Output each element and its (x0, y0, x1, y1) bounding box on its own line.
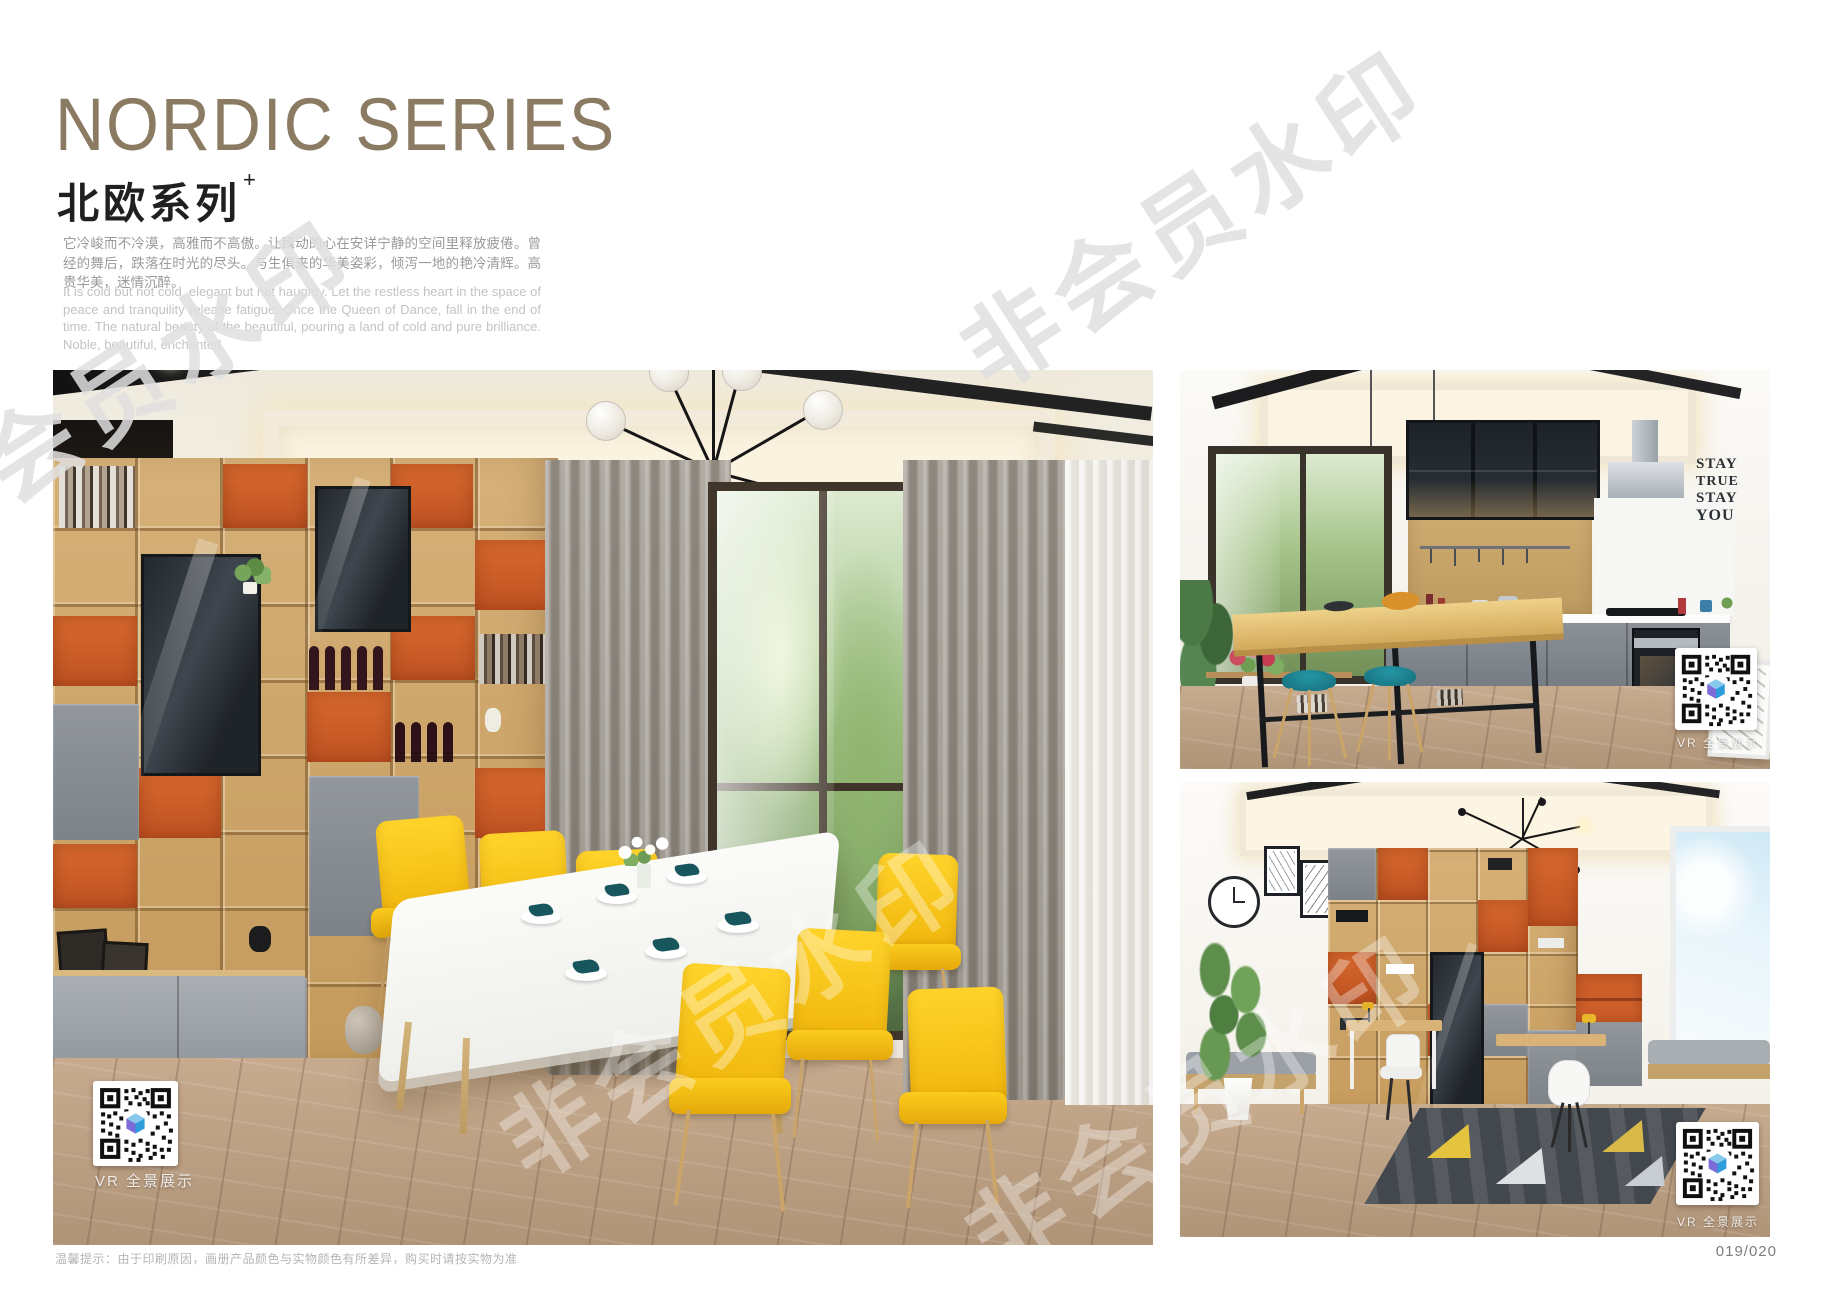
dining-chair (792, 928, 892, 1045)
orange-shelf-cell (1328, 952, 1376, 1004)
wall-clock (1208, 876, 1260, 928)
page-number: 019/020 (1716, 1243, 1777, 1260)
counter-plant (1720, 596, 1734, 610)
utensil-rail (1420, 546, 1570, 549)
qr-code (93, 1081, 178, 1166)
hanging-utensil (1430, 549, 1432, 563)
area-rug (1364, 1108, 1705, 1204)
sheer-panel (1065, 460, 1153, 1105)
wine-bottle (443, 722, 453, 762)
wall-art-line: STAY (1696, 456, 1739, 473)
orange-shelf-cell (475, 540, 555, 610)
chair-leg (1568, 1104, 1571, 1152)
dining-chair-seat (669, 1078, 791, 1114)
chandelier-bulb (1458, 808, 1466, 816)
wine-bottle (357, 646, 367, 690)
counter-mixer (1700, 600, 1712, 612)
vr-panorama-label: VR 全景展示 (95, 1170, 194, 1191)
desk-lamp-arm (1368, 1008, 1370, 1022)
oven-handle (1634, 638, 1698, 648)
catalog-page: NORDIC SERIES 北欧系列+ 它冷峻而不冷漠，高雅而不高傲。让躁动的心… (0, 0, 1836, 1307)
page-subtitle: 北欧系列+ (57, 170, 258, 231)
glass-cabinet-door (1430, 952, 1484, 1116)
clock-hand (1233, 901, 1245, 903)
cabinet-shelf-line (1409, 470, 1597, 472)
glass-globe (649, 370, 689, 392)
wine-bottle (325, 646, 335, 690)
chandelier-stem (712, 370, 715, 470)
stool-leg (1308, 690, 1311, 766)
floor-jar (345, 1006, 383, 1054)
orange-shelf-cell (475, 768, 555, 838)
wall-art-line: YOU (1696, 507, 1739, 524)
island-frame-leg (1256, 655, 1268, 767)
shelf-decor (1336, 910, 1368, 922)
book-row (59, 466, 135, 528)
desk-leg (1432, 1031, 1436, 1089)
desk-left (1346, 1020, 1442, 1031)
range-hood (1608, 462, 1684, 502)
glass-reflection (303, 477, 370, 642)
stool-leg (1388, 686, 1391, 760)
photo-study: VR 全景展示 (1180, 782, 1770, 1237)
bench-leg (1300, 1088, 1304, 1114)
desk-right (1496, 1034, 1606, 1046)
rug-triangle (1427, 1124, 1491, 1158)
orange-shelf-cell (1378, 848, 1428, 900)
orange-shelf-cell (53, 844, 137, 908)
dining-chair-seat (899, 1092, 1007, 1124)
wall-art-stay-true: STAY TRUE STAY YOU (1696, 456, 1739, 524)
watermark-text: 非会员水印 (930, 11, 1450, 416)
shelf-decor (1386, 964, 1414, 974)
frame-artwork (1269, 851, 1295, 891)
island-frame-leg (1530, 641, 1542, 753)
orange-shelf-cell (139, 768, 221, 838)
black-jar (249, 926, 271, 952)
chandelier-arm (1522, 825, 1583, 840)
picture-frame (1264, 846, 1300, 896)
window (1670, 826, 1770, 1052)
cabinet-shelf-line (1576, 998, 1642, 1001)
counter-bottle (1678, 598, 1686, 614)
shelf-books (1436, 689, 1463, 706)
plant-pot (243, 582, 257, 594)
window-bench-cushion (1648, 1040, 1770, 1066)
hanging-utensil (1478, 549, 1480, 562)
page-title: NORDIC SERIES (55, 82, 616, 167)
glass-reflection (1410, 943, 1477, 1126)
hanging-utensil (1526, 549, 1528, 563)
wine-bottle-row (395, 720, 475, 762)
hanging-utensil (1502, 549, 1504, 565)
dining-chair (907, 986, 1007, 1105)
window-bench-base (1648, 1064, 1770, 1079)
desk-chair-seat (1380, 1066, 1422, 1079)
qr-code (1675, 648, 1757, 730)
chandelier-bulb (1538, 798, 1546, 806)
wine-bottle (309, 646, 319, 690)
orange-shelf-cell (1528, 848, 1578, 926)
wine-bottle-row (309, 644, 393, 690)
cooktop (1606, 608, 1686, 616)
gray-cabinet-door (53, 704, 139, 840)
orange-shelf-cell (53, 616, 137, 686)
shelf-unit (1328, 848, 1578, 1110)
dining-chair-seat (787, 1030, 893, 1060)
potted-plant (231, 556, 271, 584)
glass-globe (722, 370, 762, 391)
gray-cabinet-door (1478, 1004, 1528, 1056)
glass-globe (803, 390, 843, 430)
wine-bottle (341, 646, 351, 690)
potted-plant (1188, 942, 1278, 1082)
vr-panorama-label: VR 全景展示 (1677, 1213, 1759, 1230)
wall-art-line: STAY (1696, 490, 1739, 507)
flower-centerpiece (613, 832, 673, 866)
wine-bottle (373, 646, 383, 690)
flower-vase (637, 864, 651, 888)
hanging-utensil (1454, 549, 1456, 566)
qr-code (1675, 1122, 1760, 1205)
book-row (479, 634, 551, 684)
subtitle-text: 北欧系列 (57, 180, 241, 227)
plant-leaves (1180, 580, 1240, 700)
shell-chair (1548, 1060, 1590, 1106)
glass-wall-cabinet (1406, 420, 1600, 520)
gray-cabinet-door (1328, 848, 1376, 900)
range-hood-duct (1632, 420, 1658, 464)
wall-art-line: TRUE (1696, 473, 1739, 490)
desk-lamp-arm (1588, 1022, 1590, 1034)
wine-bottle (427, 722, 437, 762)
footer-disclaimer: 温馨提示：由于印刷原因，画册产品颜色与实物颜色有所差异，购买时请按实物为准 (55, 1250, 518, 1267)
rug-triangle (1602, 1120, 1662, 1152)
rug-triangle (1496, 1148, 1567, 1184)
wine-bottle (395, 722, 405, 762)
bench-leg (1194, 1088, 1198, 1114)
subtitle-plus: + (243, 167, 260, 192)
photo-dining-room: VR 全景展示 (53, 370, 1153, 1245)
shelf-decor (1488, 858, 1512, 870)
glass-cabinet-door (315, 486, 411, 632)
white-vase (485, 708, 501, 732)
orange-shelf-cell (307, 692, 391, 762)
glass-globe (586, 401, 626, 441)
cabinet-interior-glow (1409, 479, 1597, 517)
desk-leg (1350, 1031, 1354, 1089)
description-english: It is cold but not cold, elegant but not… (63, 283, 541, 353)
shelf-decor (1538, 938, 1564, 948)
chandelier-bulb (1580, 822, 1588, 830)
shelf-books (1296, 694, 1327, 714)
chandelier-arm (1465, 812, 1522, 840)
photo-kitchen: STAY TRUE STAY YOU VR 全景展示 (1180, 370, 1770, 769)
wine-bottle (411, 722, 421, 762)
orange-shelf-cell (223, 464, 307, 528)
vr-panorama-label: VR 全景展示 (1677, 734, 1759, 751)
orange-shelf-cell (1478, 900, 1528, 952)
